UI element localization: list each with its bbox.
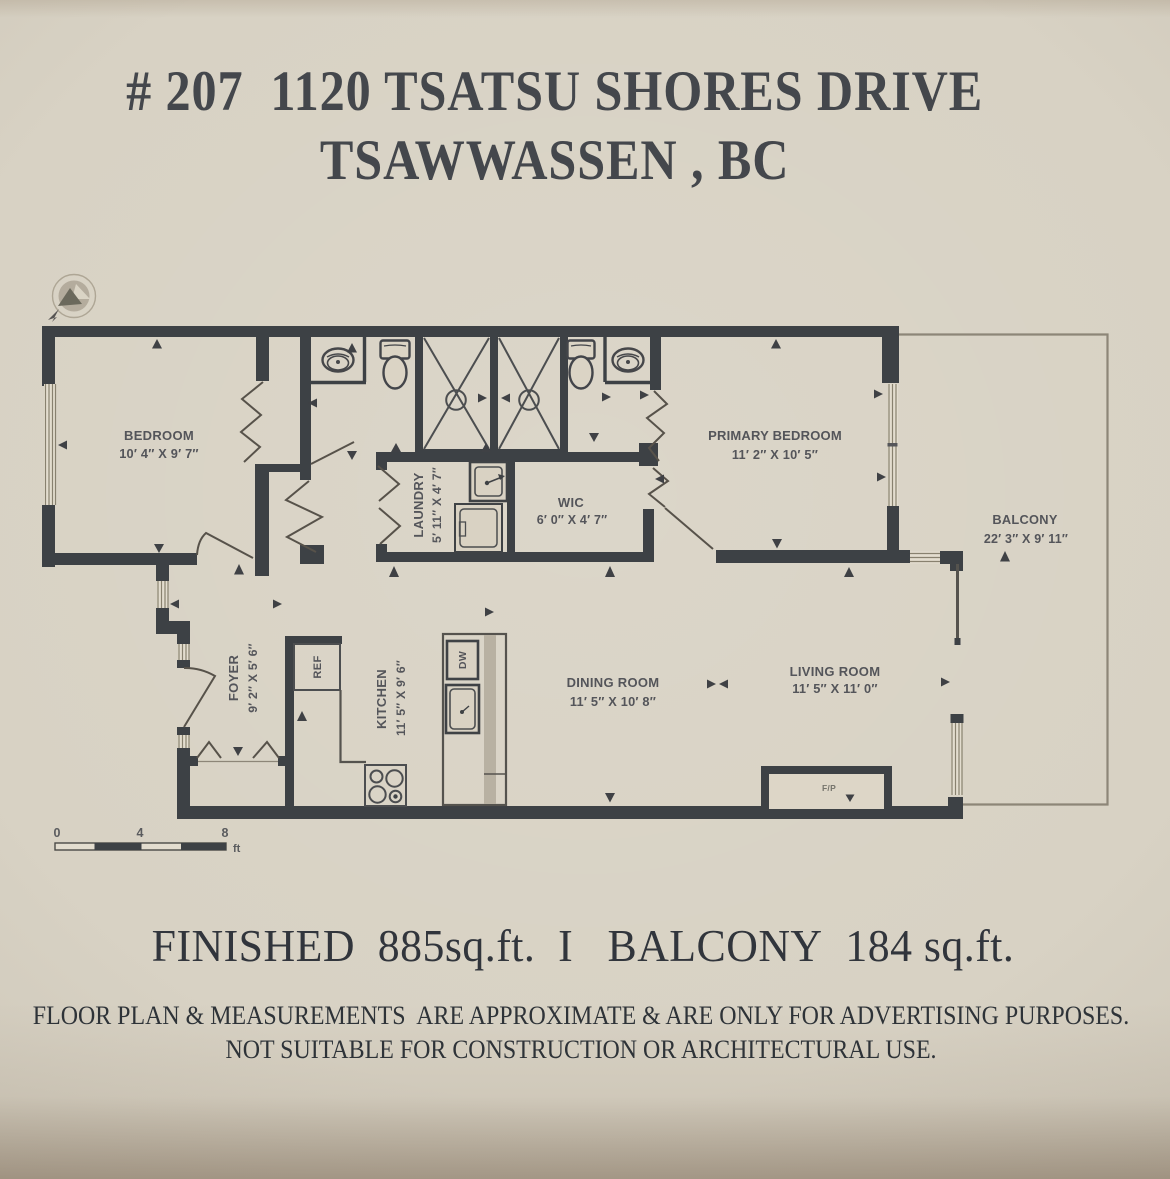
svg-text:11′ 5″ X 10′ 8″: 11′ 5″ X 10′ 8″ <box>570 694 656 709</box>
svg-text:FOYER: FOYER <box>226 655 241 702</box>
svg-text:11′ 5″ X 11′ 0″: 11′ 5″ X 11′ 0″ <box>792 681 877 696</box>
svg-text:DW: DW <box>457 651 469 669</box>
svg-text:10′ 4″ X 9′ 7″: 10′ 4″ X 9′ 7″ <box>119 446 199 461</box>
svg-text:DINING ROOM: DINING ROOM <box>567 675 660 690</box>
svg-text:ft: ft <box>233 843 241 855</box>
svg-text:22′ 3″ X 9′ 11″: 22′ 3″ X 9′ 11″ <box>984 532 1068 546</box>
svg-text:11′ 2″ X 10′ 5″: 11′ 2″ X 10′ 5″ <box>732 447 818 462</box>
svg-text:4: 4 <box>137 826 144 840</box>
svg-text:PRIMARY BEDROOM: PRIMARY BEDROOM <box>708 428 842 443</box>
svg-text:9′ 2″ X 5′ 6″: 9′ 2″ X 5′ 6″ <box>246 643 260 713</box>
svg-text:KITCHEN: KITCHEN <box>374 669 389 729</box>
svg-text:WIC: WIC <box>558 495 584 510</box>
svg-text:BEDROOM: BEDROOM <box>124 428 194 443</box>
svg-text:BALCONY: BALCONY <box>992 512 1058 527</box>
svg-text:F/P: F/P <box>822 783 836 793</box>
svg-text:LIVING ROOM: LIVING ROOM <box>790 664 881 679</box>
svg-text:0: 0 <box>54 826 61 840</box>
svg-text:6′ 0″ X 4′ 7″: 6′ 0″ X 4′ 7″ <box>537 513 608 527</box>
svg-text:5′ 11″ X 4′ 7″: 5′ 11″ X 4′ 7″ <box>430 467 444 543</box>
svg-text:11′ 5″ X 9′ 6″: 11′ 5″ X 9′ 6″ <box>394 660 408 736</box>
svg-text:REF: REF <box>312 655 324 678</box>
svg-text:LAUNDRY: LAUNDRY <box>411 472 426 537</box>
svg-text:8: 8 <box>222 826 229 840</box>
